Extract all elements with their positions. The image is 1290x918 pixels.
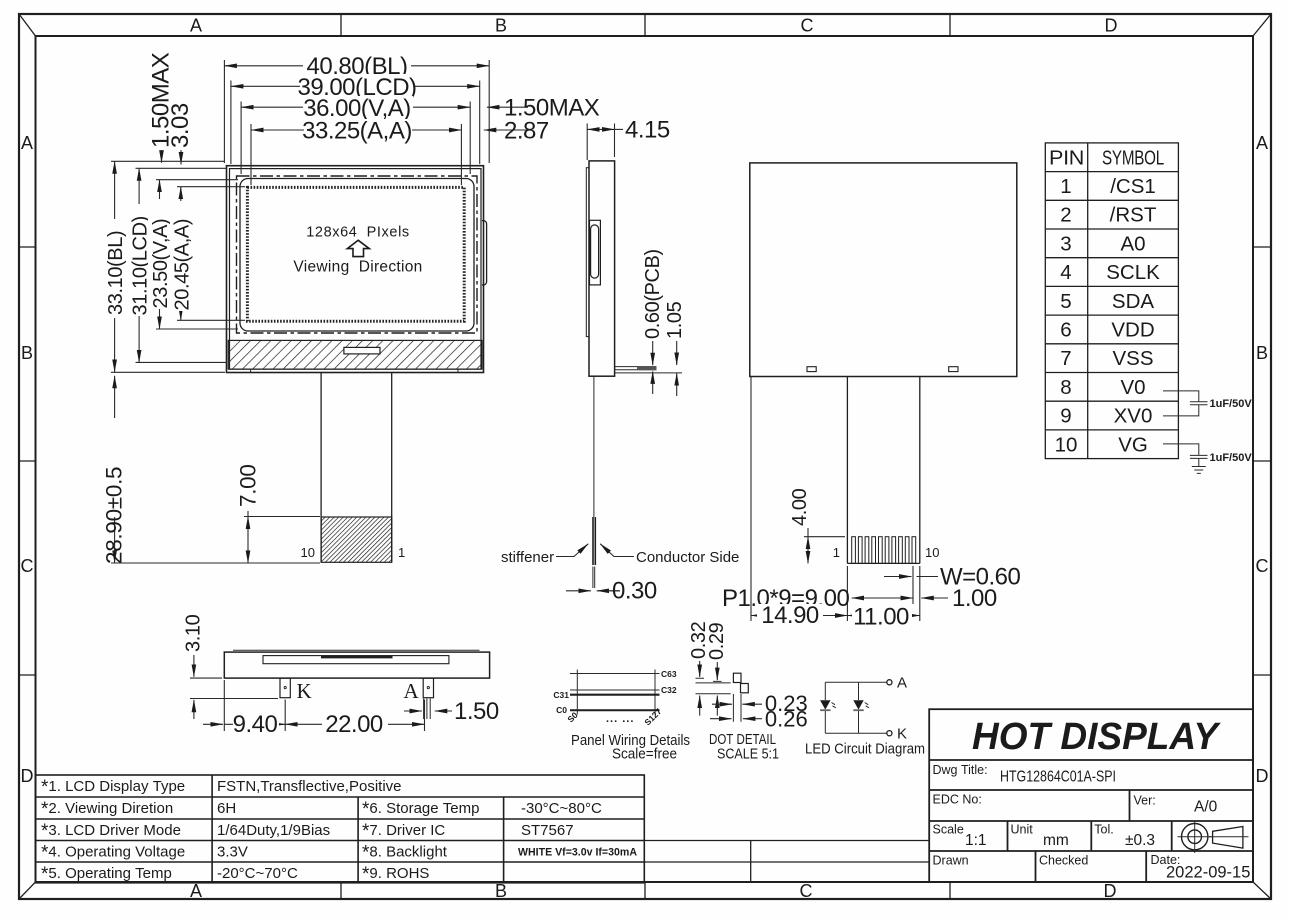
svg-text:1: 1 (833, 545, 840, 560)
svg-text:C32: C32 (661, 685, 677, 695)
svg-text:B: B (1256, 343, 1268, 363)
svg-text:3.3V: 3.3V (217, 844, 248, 861)
svg-text:stiffener: stiffener (501, 549, 554, 566)
svg-text:HOT DISPLAY: HOT DISPLAY (972, 716, 1222, 758)
svg-text:2022-09-15: 2022-09-15 (1166, 864, 1250, 882)
svg-text:1: 1 (1060, 175, 1071, 198)
svg-text:SCLK: SCLK (1106, 261, 1160, 284)
svg-text:Tol.: Tol. (1094, 823, 1113, 837)
svg-text:LED Circuit Diagram: LED Circuit Diagram (805, 742, 925, 758)
svg-text:SDA: SDA (1112, 290, 1154, 313)
svg-text:Scale=free: Scale=free (612, 747, 677, 763)
svg-text:C: C (801, 16, 814, 36)
svg-text:WHITE Vf=3.0v If=30mA: WHITE Vf=3.0v If=30mA (518, 847, 637, 859)
svg-text:-20°C~70°C: -20°C~70°C (217, 865, 298, 882)
svg-text:B: B (495, 881, 507, 901)
svg-text:HTG12864C01A-SPI: HTG12864C01A-SPI (1000, 769, 1116, 786)
svg-text:±0.3: ±0.3 (1125, 832, 1155, 849)
svg-text:4.00: 4.00 (789, 488, 811, 526)
svg-text:*5. Operating Temp: *5. Operating Temp (41, 864, 172, 885)
svg-text:*3. LCD Driver Mode: *3. LCD Driver Mode (41, 821, 181, 842)
svg-text:D: D (1104, 881, 1117, 901)
svg-text:4.15: 4.15 (625, 117, 670, 144)
svg-text:*6. Storage Temp: *6. Storage Temp (362, 799, 479, 820)
svg-text:*7. Driver IC: *7. Driver IC (362, 821, 445, 842)
svg-text:VG: VG (1118, 433, 1148, 456)
svg-text:23.50(V,A): 23.50(V,A) (150, 219, 172, 309)
svg-text:*4. Operating Voltage: *4. Operating Voltage (41, 843, 185, 864)
svg-text:1: 1 (398, 545, 405, 560)
svg-text:5: 5 (1060, 290, 1071, 313)
svg-text:20.45(A,A): 20.45(A,A) (172, 219, 194, 311)
svg-text:VSS: VSS (1112, 347, 1153, 370)
svg-text:Unit: Unit (1011, 823, 1034, 837)
svg-text:D: D (1105, 16, 1118, 36)
svg-text:0.29: 0.29 (706, 622, 728, 660)
svg-text:2: 2 (1060, 204, 1071, 227)
svg-text:10: 10 (301, 545, 315, 560)
svg-text:A0: A0 (1120, 232, 1145, 255)
svg-text:33.25(A,A): 33.25(A,A) (302, 118, 412, 145)
svg-text:A: A (21, 133, 33, 153)
svg-text:C: C (800, 881, 813, 901)
svg-text:6: 6 (1060, 319, 1071, 342)
svg-text:XV0: XV0 (1114, 405, 1153, 428)
svg-text:*2. Viewing Diretion: *2. Viewing Diretion (41, 799, 173, 820)
svg-text:*9. ROHS: *9. ROHS (362, 864, 429, 885)
svg-text:28.90±0.5: 28.90±0.5 (102, 467, 127, 564)
svg-text:9.40: 9.40 (233, 711, 278, 738)
svg-text:/RST: /RST (1110, 204, 1157, 227)
svg-text:*1. LCD Display Type: *1. LCD Display Type (41, 777, 185, 798)
svg-text:A: A (1256, 133, 1268, 153)
svg-text:4: 4 (1060, 261, 1071, 284)
svg-text:A: A (404, 679, 420, 703)
svg-text:Checked: Checked (1039, 854, 1088, 868)
svg-text:0.30: 0.30 (612, 578, 657, 605)
svg-text:C63: C63 (661, 669, 677, 679)
svg-text:128x64 PIxels: 128x64 PIxels (306, 225, 410, 241)
svg-text:SYMBOL: SYMBOL (1102, 147, 1164, 170)
svg-text:A/0: A/0 (1194, 799, 1218, 816)
svg-text:1.50: 1.50 (454, 698, 499, 725)
svg-text:9: 9 (1060, 405, 1071, 428)
svg-text:C31: C31 (553, 690, 569, 700)
svg-text:A: A (190, 16, 202, 36)
svg-text:B: B (495, 16, 507, 36)
svg-text:ST7567: ST7567 (521, 822, 574, 839)
svg-text:14.90: 14.90 (761, 602, 819, 629)
svg-text:SCALE 5:1: SCALE 5:1 (717, 747, 779, 763)
svg-text:VDD: VDD (1111, 319, 1154, 342)
svg-text:1:1: 1:1 (965, 832, 987, 849)
svg-text:PIN: PIN (1049, 147, 1084, 170)
svg-text:D: D (1256, 766, 1269, 786)
svg-text:22.00: 22.00 (325, 711, 383, 738)
svg-text:/CS1: /CS1 (1110, 175, 1156, 198)
svg-text:3.03: 3.03 (167, 103, 194, 148)
svg-text:B: B (21, 343, 33, 363)
svg-text:C0: C0 (556, 705, 567, 715)
svg-text:1.05: 1.05 (664, 301, 686, 339)
svg-text:D: D (21, 766, 34, 786)
svg-text:3.10: 3.10 (183, 614, 205, 652)
svg-text:K: K (297, 679, 312, 703)
svg-text:C: C (1256, 556, 1269, 576)
svg-text:-30°C~80°C: -30°C~80°C (521, 800, 602, 817)
svg-text:3: 3 (1060, 232, 1071, 255)
svg-text:1.00: 1.00 (952, 585, 997, 612)
svg-text:... ...: ... ... (606, 713, 634, 725)
svg-text:Dwg Title:: Dwg Title: (933, 763, 988, 777)
svg-text:Drawn: Drawn (933, 854, 969, 868)
svg-text:EDC No:: EDC No: (933, 793, 982, 807)
svg-text:K: K (897, 726, 907, 743)
svg-text:33.10(BL): 33.10(BL) (105, 231, 127, 315)
svg-text:1uF/50V: 1uF/50V (1210, 398, 1253, 410)
svg-text:A: A (897, 675, 907, 692)
svg-text:7: 7 (1060, 347, 1071, 370)
svg-text:0.26: 0.26 (765, 707, 808, 732)
svg-text:Scale: Scale (933, 823, 964, 837)
svg-text:11.00: 11.00 (853, 604, 909, 631)
svg-text:A: A (190, 881, 202, 901)
svg-text:6H: 6H (217, 800, 236, 817)
svg-text:*8. Backlight: *8. Backlight (362, 843, 448, 864)
svg-text:1uF/50V: 1uF/50V (1210, 452, 1253, 464)
svg-text:7.00: 7.00 (236, 464, 261, 507)
svg-text:10: 10 (925, 545, 939, 560)
svg-text:0.60(PCB): 0.60(PCB) (642, 249, 664, 339)
svg-text:Viewing Direction: Viewing Direction (293, 259, 422, 276)
svg-text:2.87: 2.87 (504, 118, 549, 145)
svg-text:Conductor Side: Conductor Side (636, 549, 739, 566)
svg-text:mm: mm (1043, 832, 1069, 849)
svg-text:Ver:: Ver: (1134, 794, 1156, 808)
svg-text:8: 8 (1060, 376, 1071, 399)
svg-text:FSTN,Transflective,Positive: FSTN,Transflective,Positive (217, 778, 402, 795)
svg-text:V0: V0 (1120, 376, 1145, 399)
svg-text:C: C (21, 556, 34, 576)
svg-text:10: 10 (1055, 433, 1078, 456)
svg-text:1/64Duty,1/9Bias: 1/64Duty,1/9Bias (217, 822, 330, 839)
